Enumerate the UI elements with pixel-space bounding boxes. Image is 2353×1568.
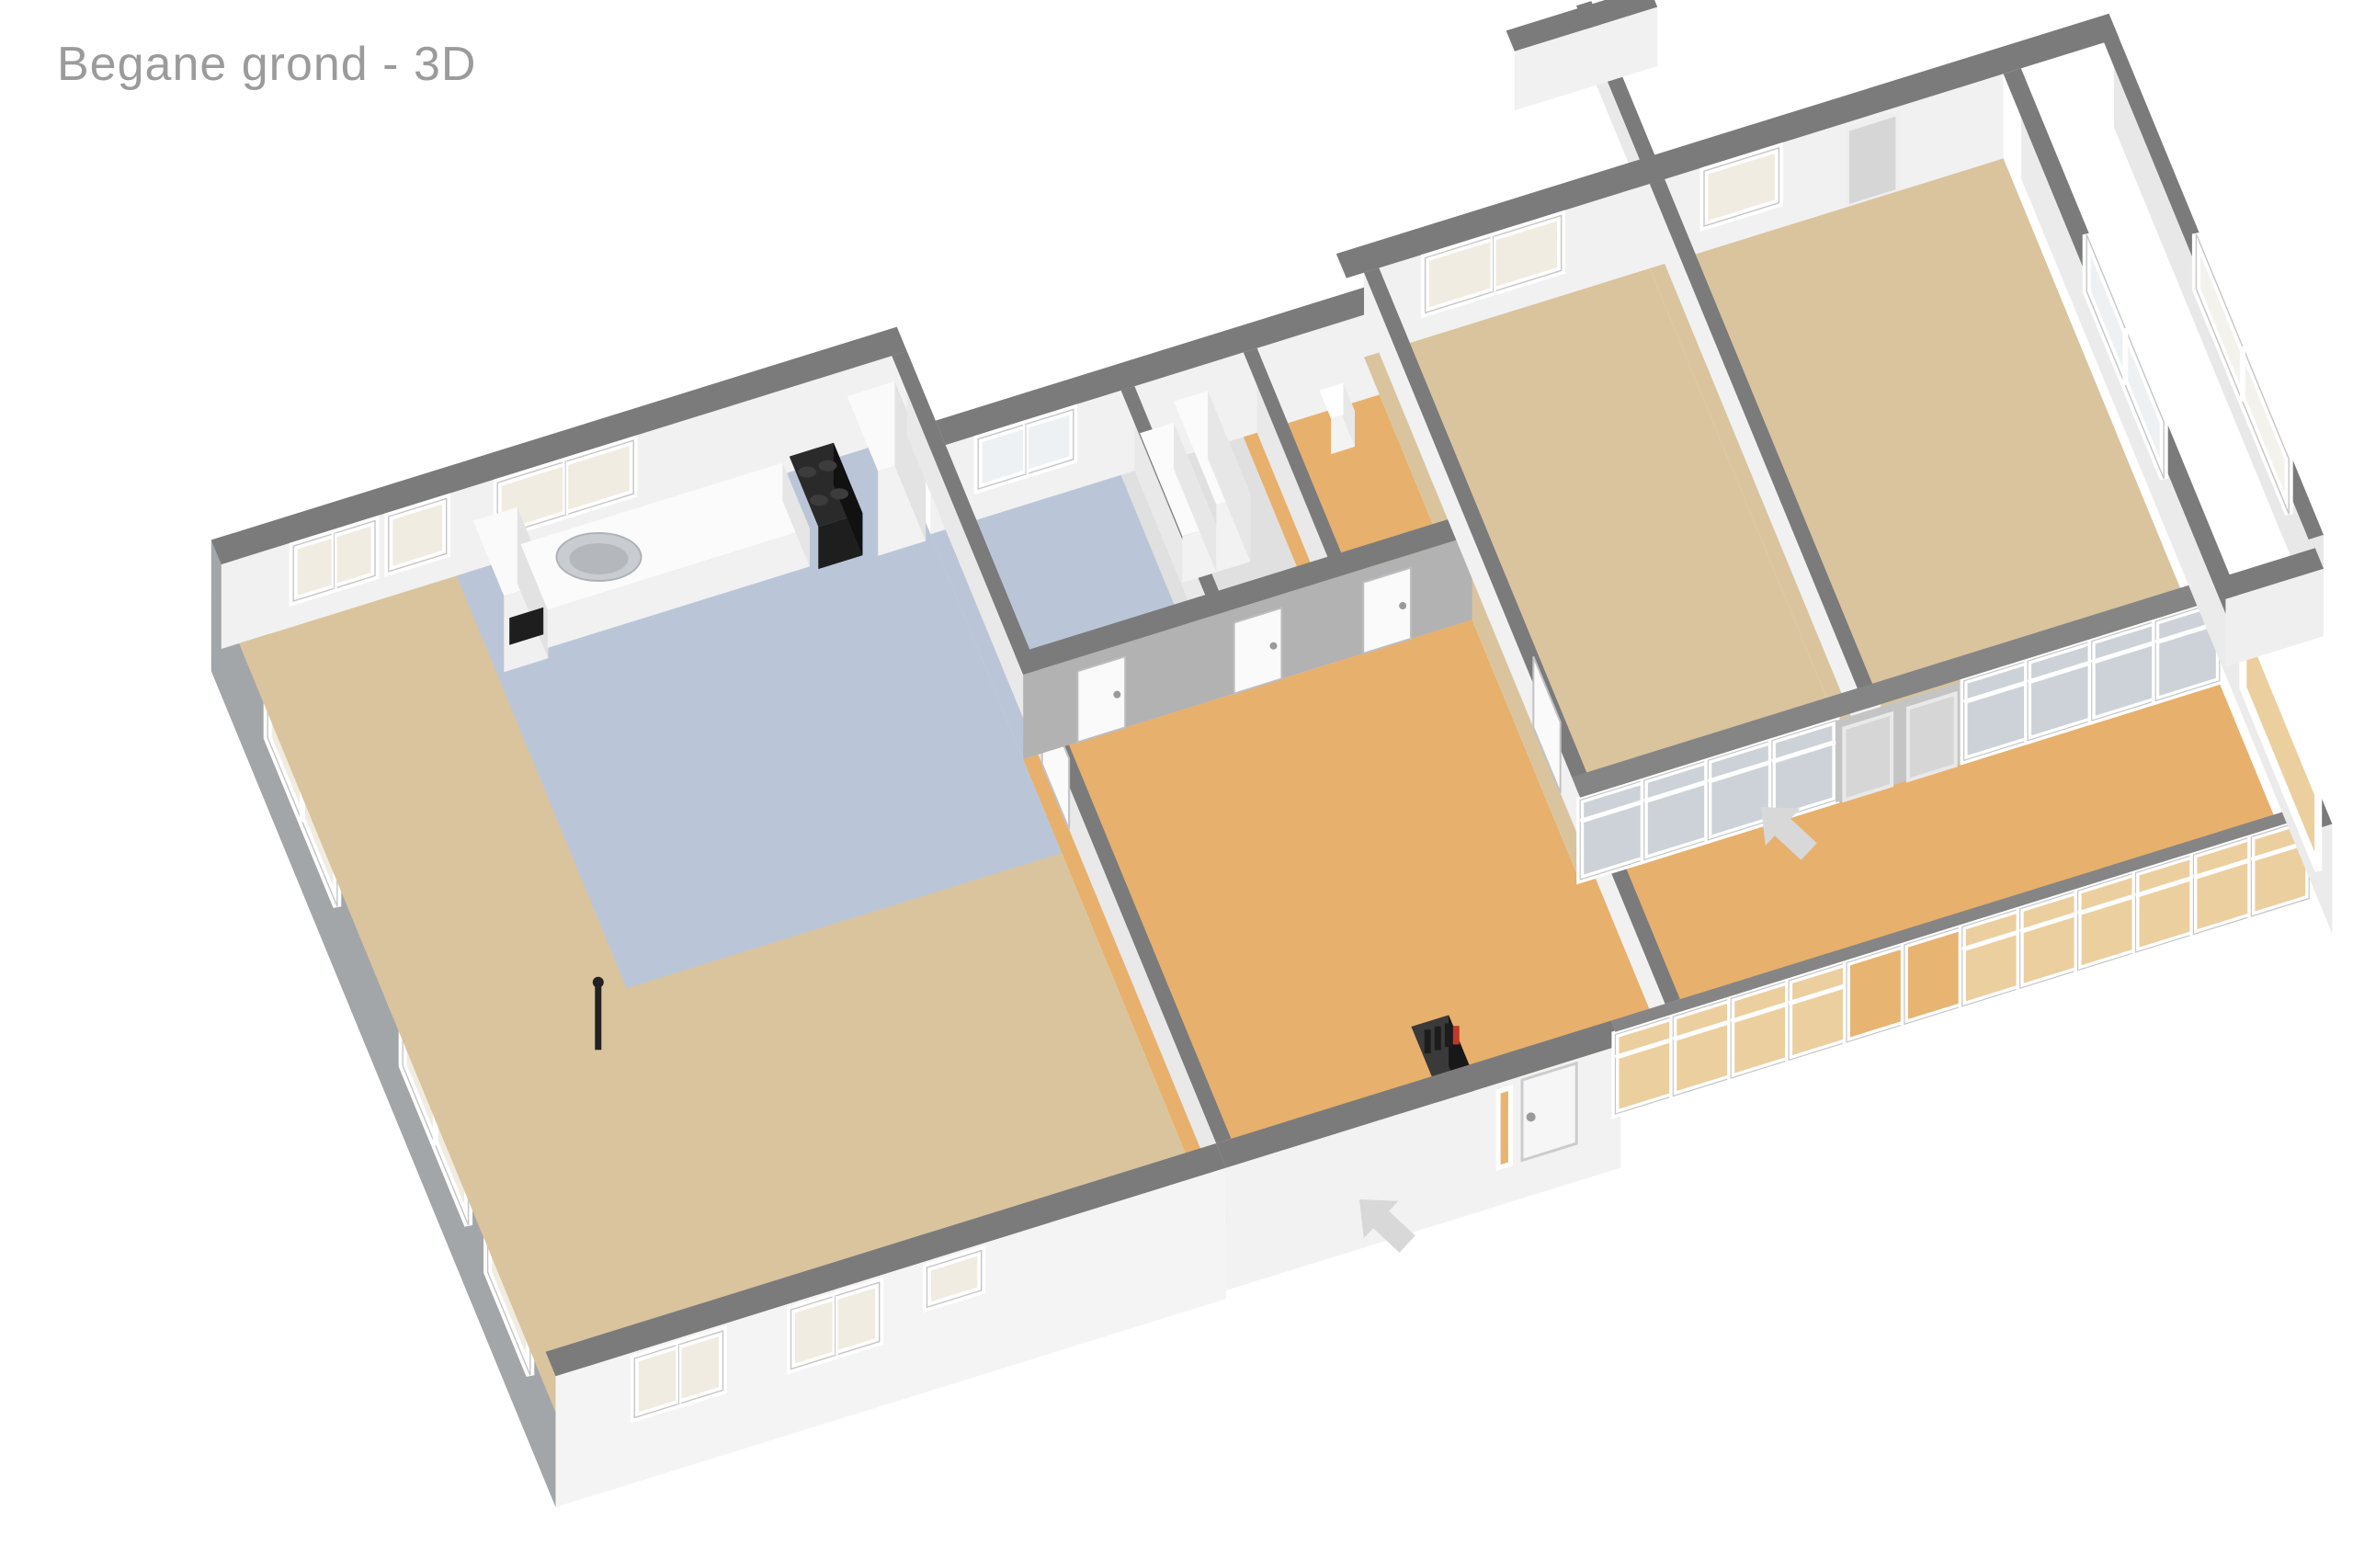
stove-burner (819, 460, 837, 472)
storage-door-handle (1270, 642, 1278, 650)
stove-burner (810, 494, 828, 506)
storage-door (1234, 608, 1282, 693)
terrace-inner-glass (1580, 780, 1644, 880)
terrace-facade-door (1847, 945, 1904, 1042)
terrace-facade-glass (1615, 1017, 1673, 1114)
toilet-door-handle (1399, 602, 1406, 609)
terrace-facade-glass (2078, 873, 2136, 971)
terrace-facade-glass (2193, 837, 2251, 935)
toilet-door (1363, 568, 1411, 653)
bathroom-door (1077, 656, 1125, 742)
floorplan-3d-view (0, 0, 2353, 1568)
entrance-sidelight (1498, 1088, 1510, 1168)
living-window-2 (389, 499, 447, 572)
terrace-facade-glass (2136, 855, 2194, 952)
bedroom1-back-door (1847, 113, 1897, 207)
bathroom-door-handle (1113, 691, 1120, 699)
terrace-inner-glass (1644, 760, 1709, 859)
kitchen-sink-basin (570, 543, 629, 574)
terrace-inner-glass (1708, 741, 1772, 840)
stove-burner (830, 488, 848, 499)
terrace-facade-glass (1962, 909, 2020, 1006)
terrace-facade-glass (2020, 891, 2078, 988)
floorplan-3d-page: Begane grond - 3D (0, 0, 2353, 1568)
terrace-inner-door (1908, 694, 1956, 780)
terrace-facade-door (1904, 926, 1962, 1024)
terrace-inner-glass (1964, 661, 2029, 760)
terrace-inner-glass (1772, 721, 1836, 820)
terrace-facade-glass (1789, 962, 1847, 1060)
terrace-inner-door (1844, 713, 1892, 800)
floor-lamp-top (593, 977, 604, 988)
stove-burner (798, 467, 816, 478)
entrance-door-handle (1527, 1112, 1536, 1121)
terrace-inner-glass (2028, 642, 2092, 741)
terrace-facade-glass (1731, 981, 1789, 1078)
entrance-door (1522, 1063, 1576, 1161)
terrace-facade-glass (1673, 999, 1731, 1096)
terrace-inner-glass (2092, 621, 2156, 721)
